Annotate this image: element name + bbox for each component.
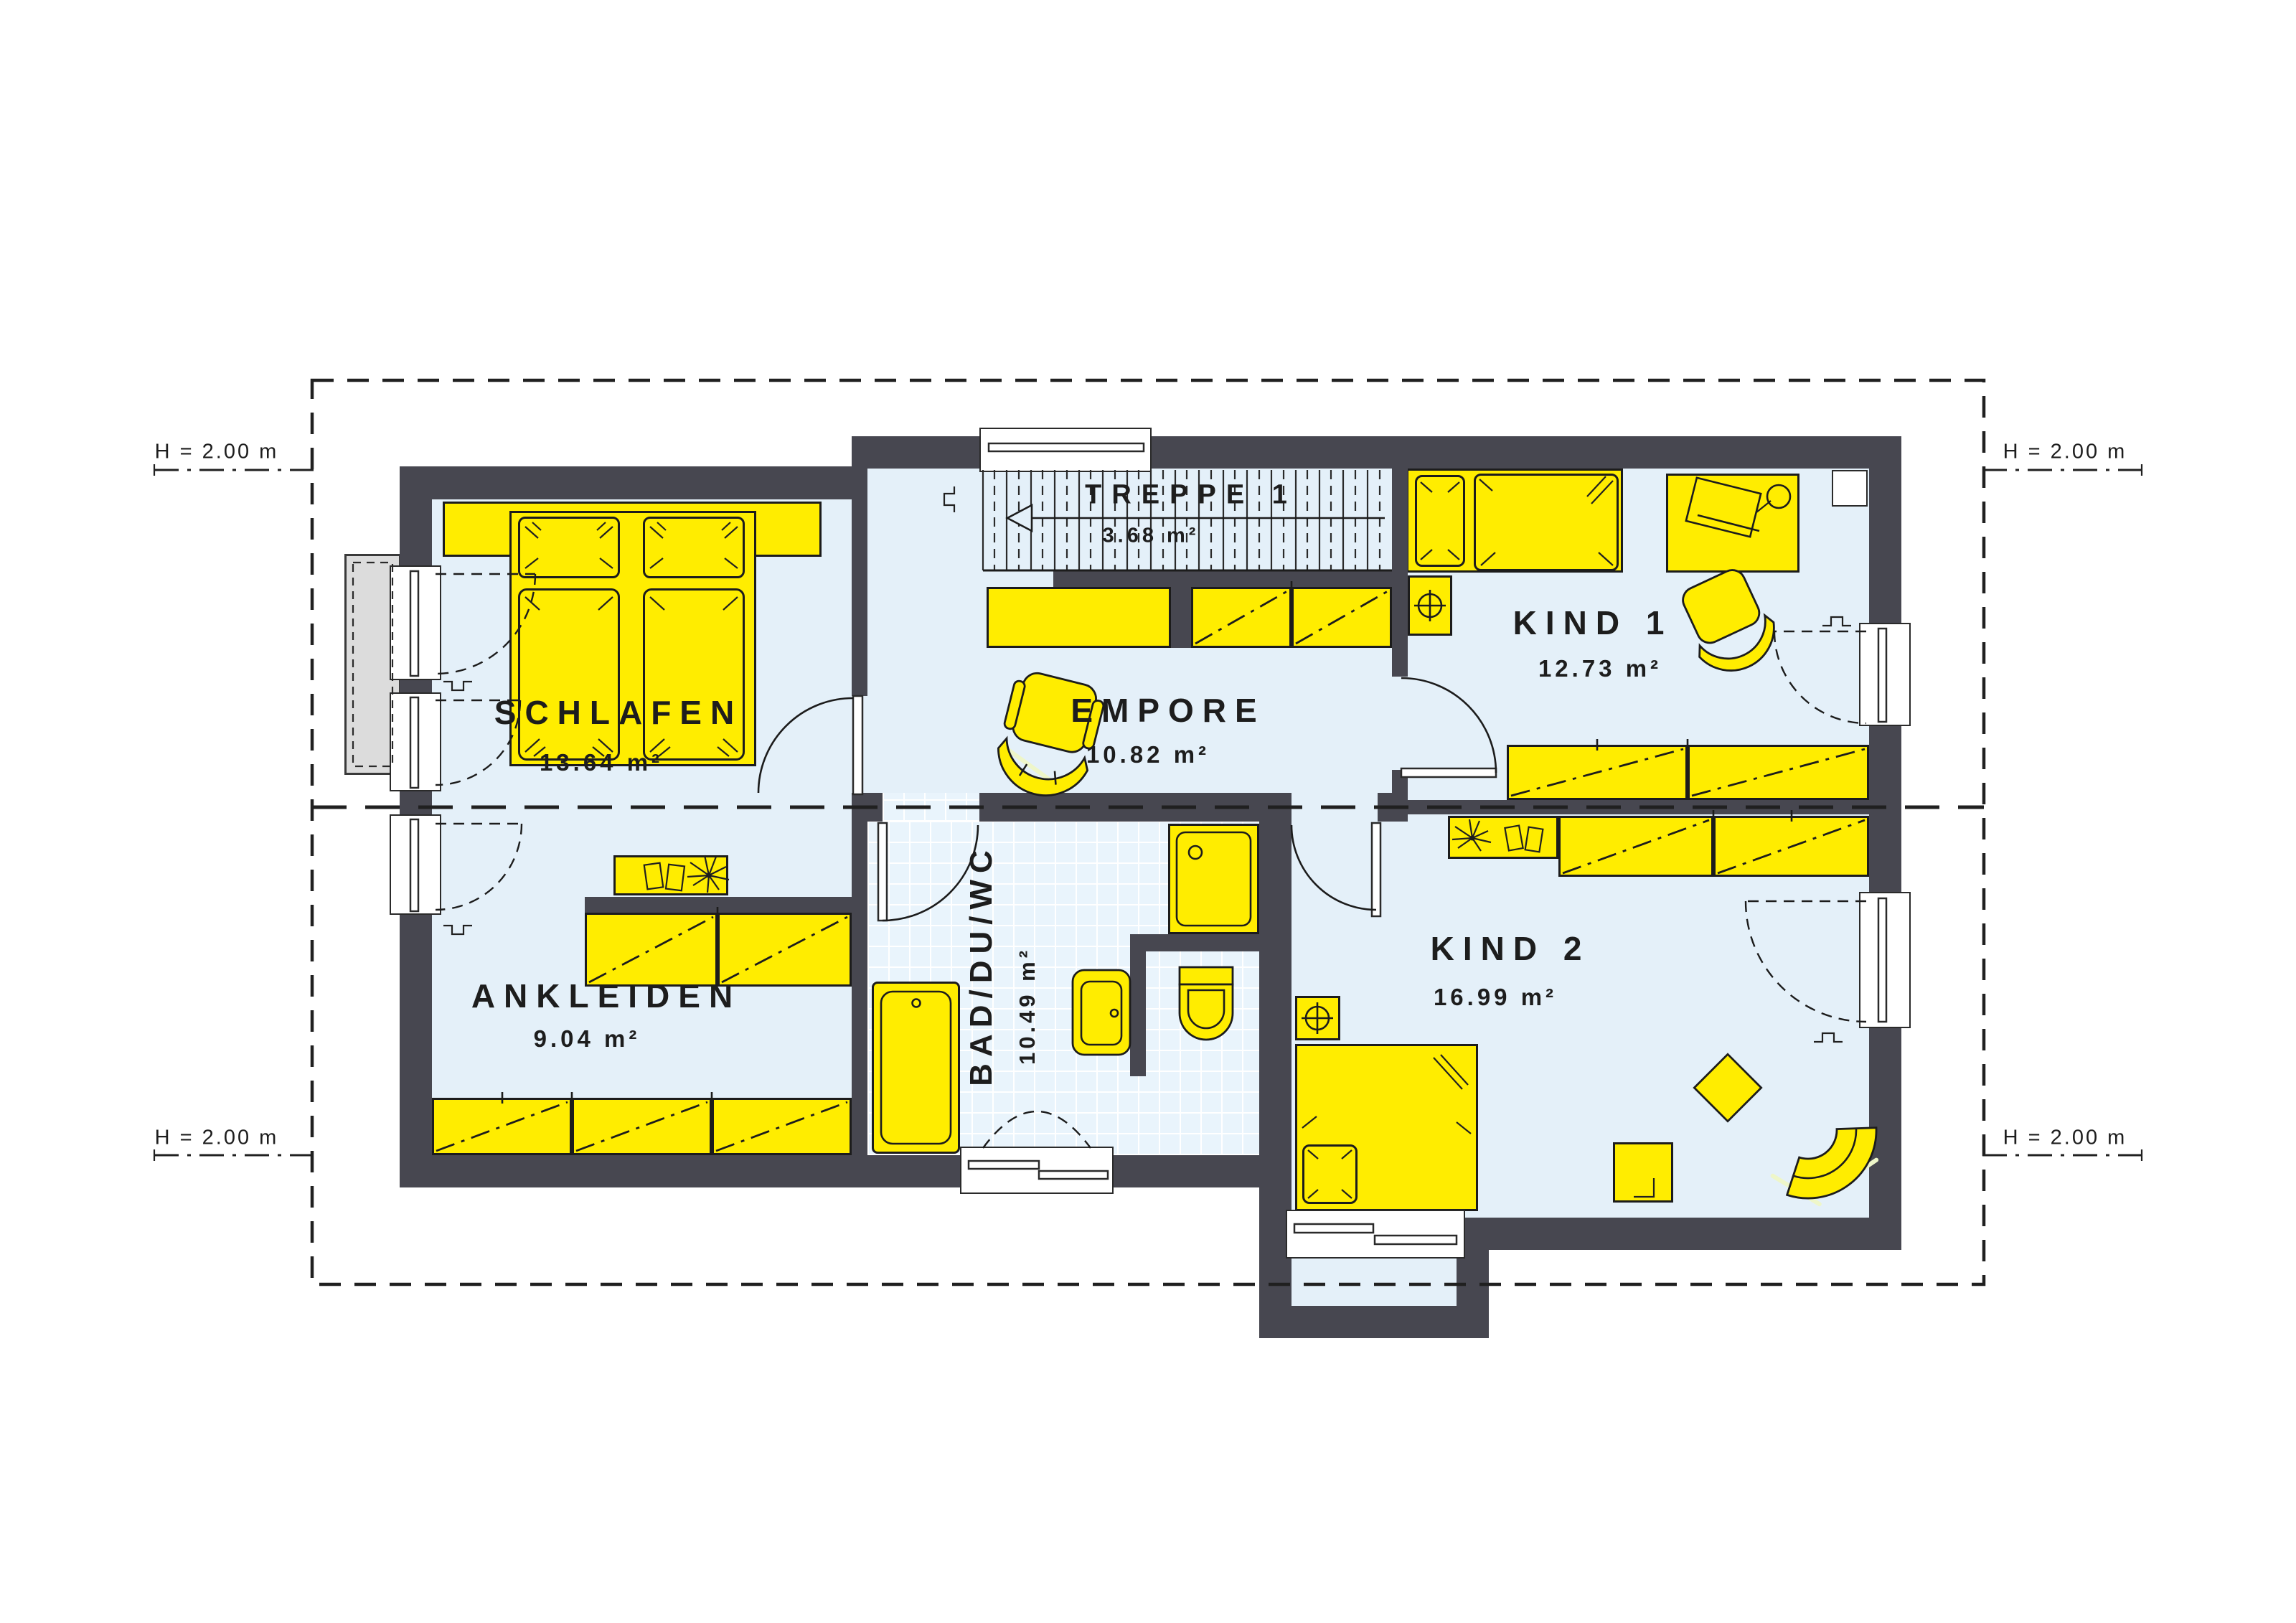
wall-mid-2 bbox=[979, 793, 1291, 822]
wardrobe-kind1-1 bbox=[1507, 745, 1688, 800]
height-marker-top-right: H = 2.00 m bbox=[2003, 441, 2127, 464]
desk-kind2 bbox=[1448, 816, 1558, 859]
window-treppe[interactable] bbox=[979, 428, 1152, 472]
wardrobe-kind2-2 bbox=[1713, 816, 1869, 877]
room-area-ankleiden: 9.04 m² bbox=[534, 1025, 641, 1053]
pillow-schlafen-left bbox=[518, 517, 620, 578]
window-bad[interactable] bbox=[960, 1147, 1114, 1194]
bathtub bbox=[872, 982, 960, 1154]
wall-ankleiden-stub bbox=[585, 897, 852, 913]
window-kind1[interactable] bbox=[1859, 623, 1911, 726]
wall-empore-kind1-lower bbox=[1392, 770, 1408, 822]
wall-left-1 bbox=[400, 466, 432, 570]
wardrobe-ankleiden-bottom-3 bbox=[712, 1098, 852, 1155]
room-label-kind1: KIND 1 bbox=[1513, 603, 1673, 642]
pillow-schlafen-right bbox=[643, 517, 745, 578]
nightstand-kind2 bbox=[1295, 996, 1340, 1040]
wardrobe-empore-1 bbox=[1191, 587, 1291, 648]
wall-wc-vertical bbox=[1130, 934, 1146, 1076]
wall-bottom-left bbox=[400, 1155, 1259, 1187]
window-kind2[interactable] bbox=[1859, 892, 1911, 1028]
wall-dormer-bottom bbox=[1259, 1306, 1489, 1338]
floorplan-canvas: SCHLAFEN 13.64 m² TREPPE 1 3.68 m² EMPOR… bbox=[0, 0, 2296, 1623]
wall-schlafen-empore bbox=[852, 469, 867, 696]
wall-empore-kind1-upper bbox=[1392, 469, 1408, 677]
wardrobe-ankleiden-bottom-2 bbox=[572, 1098, 712, 1155]
floor-door-gap-bad bbox=[883, 793, 979, 822]
window-schlafen-1[interactable] bbox=[390, 565, 441, 680]
window-schlafen-2[interactable] bbox=[390, 692, 441, 791]
wardrobe-kind2-1 bbox=[1558, 816, 1713, 877]
window-ankleiden[interactable] bbox=[390, 814, 441, 915]
room-area-schlafen: 13.64 m² bbox=[540, 749, 663, 776]
height-marker-bottom-right: H = 2.00 m bbox=[2003, 1126, 2127, 1150]
room-label-schlafen: SCHLAFEN bbox=[494, 693, 743, 732]
desk-empore bbox=[987, 587, 1171, 648]
wardrobe-kind1-2 bbox=[1688, 745, 1869, 800]
pillow-kind1 bbox=[1415, 475, 1465, 567]
wall-left-4 bbox=[400, 910, 432, 1187]
sideboard-ankleiden bbox=[613, 855, 728, 895]
wardrobe-ankleiden-top-2 bbox=[717, 913, 852, 987]
wardrobe-ankleiden-top-1 bbox=[585, 913, 717, 987]
wardrobe-ankleiden-bottom-1 bbox=[432, 1098, 572, 1155]
room-label-ankleiden: ANKLEIDEN bbox=[471, 977, 741, 1015]
room-area-kind1: 12.73 m² bbox=[1538, 655, 1662, 682]
wall-top-schlafen bbox=[400, 466, 867, 499]
wall-under-stairs bbox=[1053, 570, 1392, 587]
wall-right-1 bbox=[1869, 436, 1901, 628]
shower bbox=[1168, 824, 1259, 934]
mattress-schlafen-left bbox=[518, 588, 620, 761]
room-area-kind2: 16.99 m² bbox=[1434, 984, 1557, 1011]
chimney-niche-kind1 bbox=[1832, 470, 1868, 507]
room-label-kind2: KIND 2 bbox=[1431, 929, 1591, 968]
wall-mid-1 bbox=[867, 793, 883, 822]
wall-bottom-right bbox=[1457, 1218, 1901, 1250]
wall-empore-divider bbox=[1171, 587, 1191, 648]
desk-kind1 bbox=[1666, 474, 1799, 573]
room-label-bad: BAD/DU/WC bbox=[964, 844, 999, 1086]
room-label-treppe: TREPPE 1 bbox=[1085, 480, 1297, 511]
wall-shower-horizontal bbox=[1130, 934, 1259, 951]
room-area-empore: 10.82 m² bbox=[1086, 741, 1210, 768]
pillow-kind2 bbox=[1302, 1144, 1358, 1204]
blanket-kind1 bbox=[1474, 474, 1619, 571]
pouf-kind2 bbox=[1613, 1142, 1673, 1203]
knee-wall-kind1-kind2 bbox=[1408, 800, 1869, 814]
room-area-bad: 10.49 m² bbox=[1015, 947, 1040, 1065]
height-marker-top-left: H = 2.00 m bbox=[155, 441, 279, 464]
floor-door-gap-kind1 bbox=[1392, 677, 1408, 770]
window-dormer-kind2[interactable] bbox=[1286, 1210, 1465, 1259]
wall-bad-kind2-dormer-left bbox=[1259, 822, 1291, 1338]
wardrobe-empore-2 bbox=[1291, 587, 1392, 648]
nightstand-kind1 bbox=[1408, 575, 1452, 636]
height-marker-bottom-left: H = 2.00 m bbox=[155, 1126, 279, 1150]
mattress-schlafen-right bbox=[643, 588, 745, 761]
wall-right-3 bbox=[1869, 1022, 1901, 1250]
floor-door-gap-schlafen bbox=[852, 696, 867, 794]
room-area-treppe: 3.68 m² bbox=[1103, 524, 1200, 548]
floor-door-gap-kind2 bbox=[1291, 793, 1378, 822]
wall-right-2 bbox=[1869, 721, 1901, 897]
wall-ankleiden-bad bbox=[852, 793, 867, 1155]
room-label-empore: EMPORE bbox=[1071, 691, 1265, 730]
